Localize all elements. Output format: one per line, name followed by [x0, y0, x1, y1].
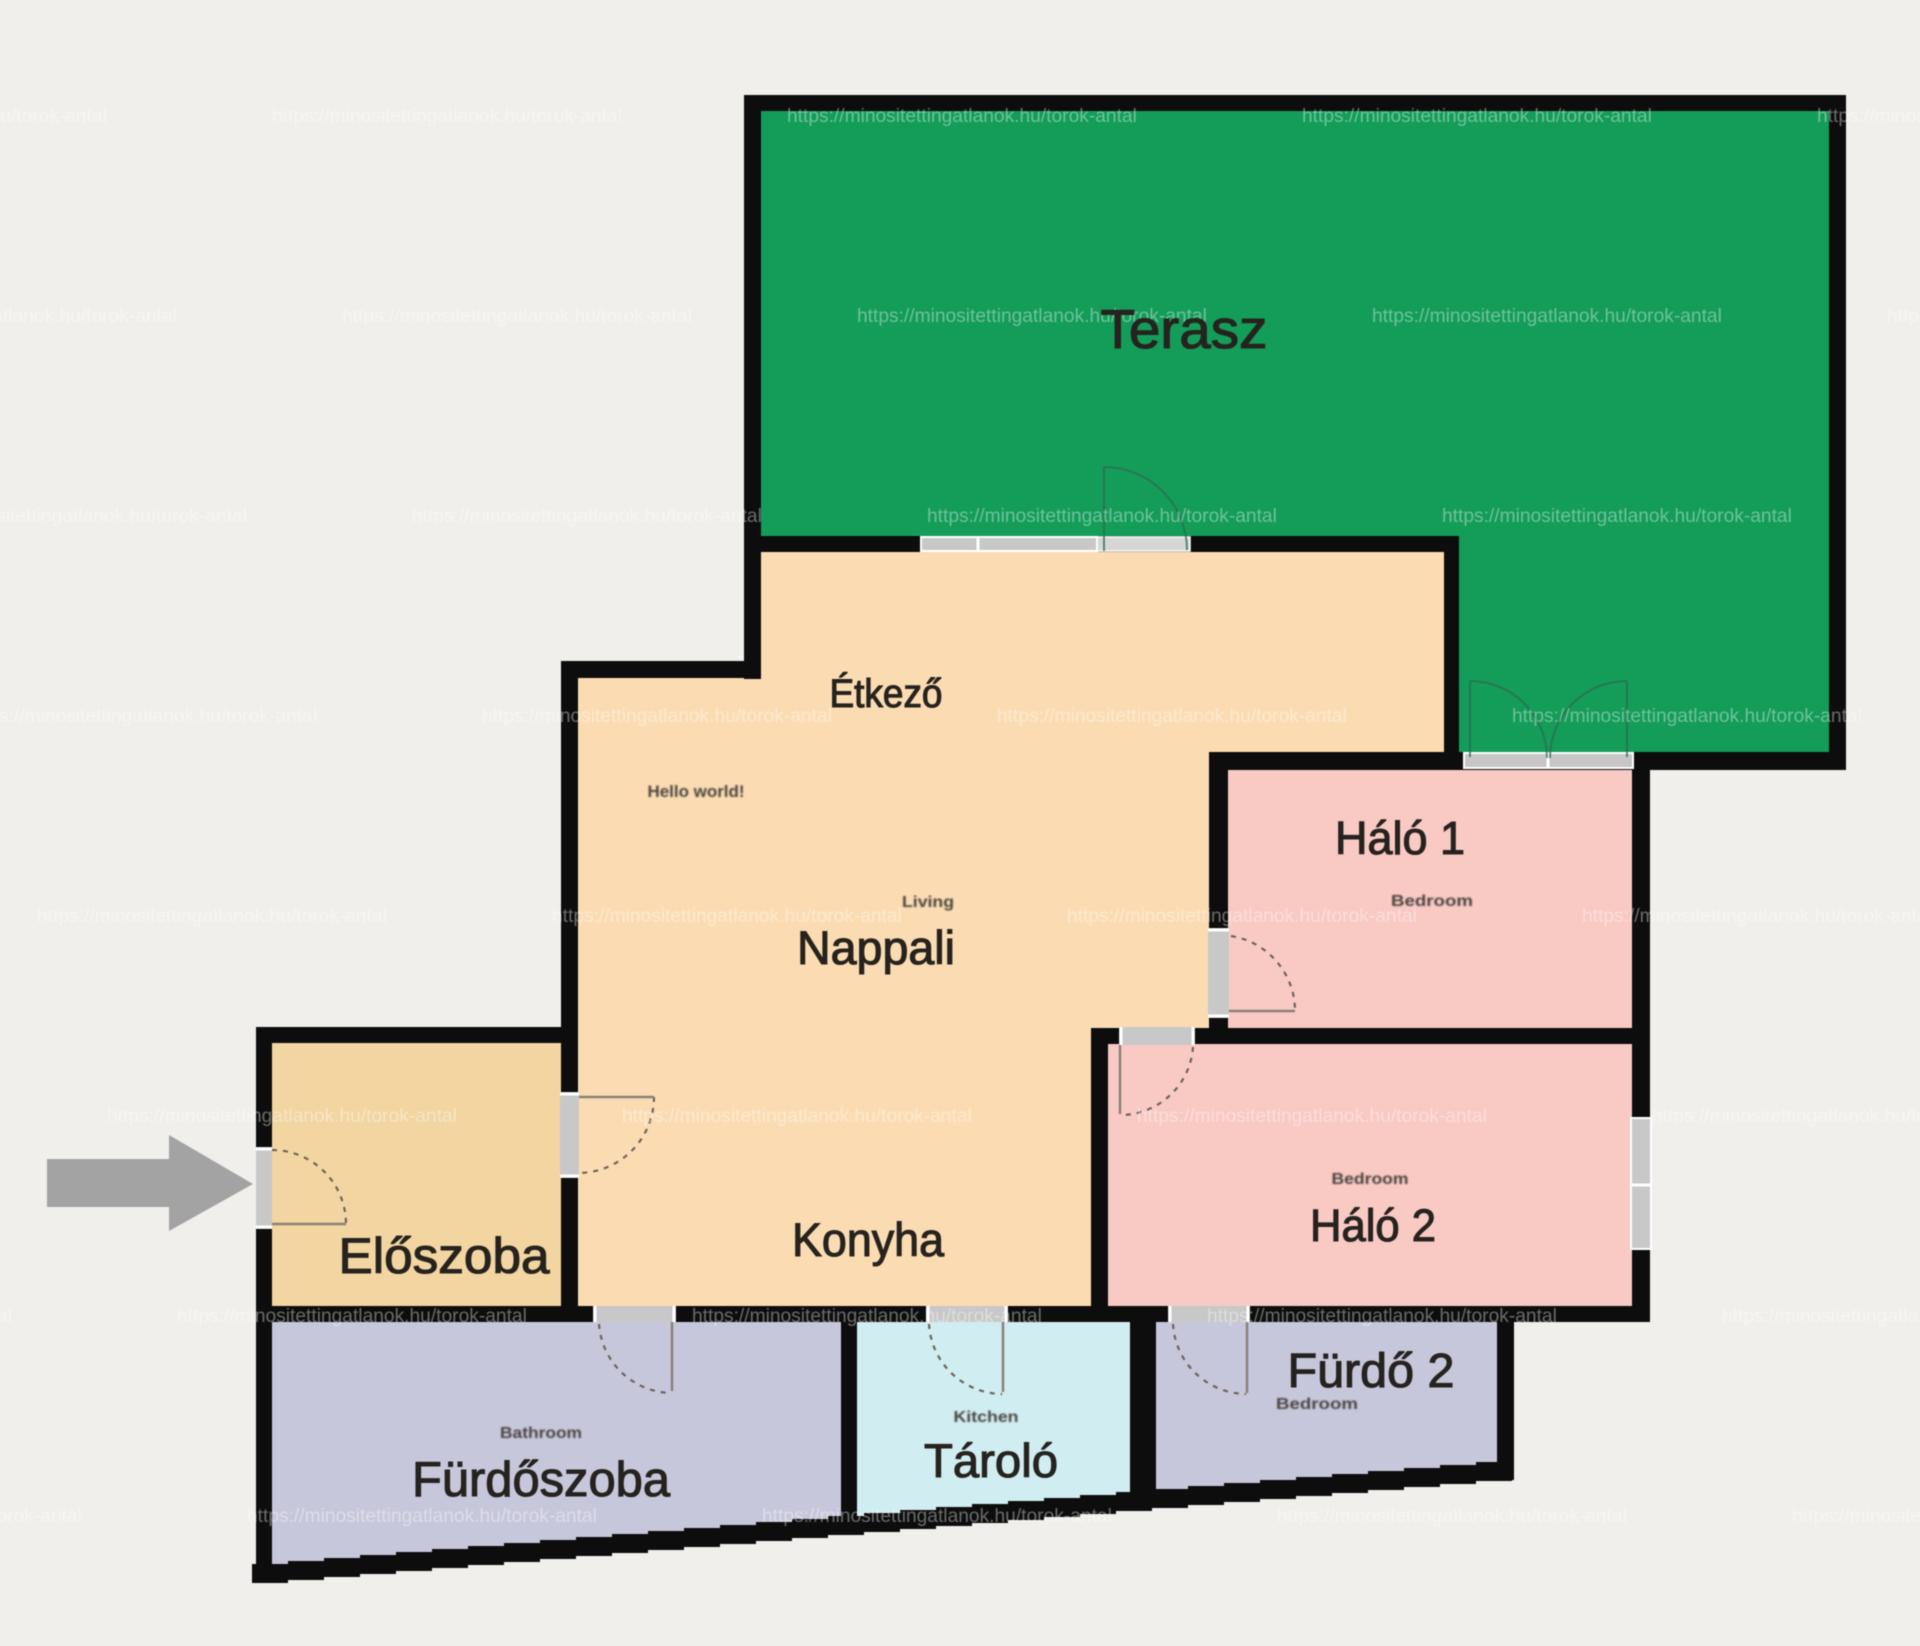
svg-text:https://minositettingatlanok.h: https://minositettingatlanok.hu/torok-an…	[0, 706, 317, 727]
svg-text:https://minositettingatlanok.h: https://minositettingatlanok.hu/torok-an…	[1067, 906, 1417, 927]
svg-text:https://minositettingatlanok.h: https://minositettingatlanok.hu/torok-an…	[787, 106, 1137, 127]
svg-text:https://minositettingatlanok.h: https://minositettingatlanok.hu/torok-an…	[1442, 506, 1792, 527]
svg-text:Étkező: Étkező	[830, 671, 943, 716]
svg-text:Bedroom: Bedroom	[1332, 1171, 1409, 1188]
svg-text:https://minositettingatlanok.h: https://minositettingatlanok.hu/torok-an…	[927, 506, 1277, 527]
svg-text:https://minositettingatlanok.h: https://minositettingatlanok.hu/torok-an…	[0, 106, 107, 127]
svg-text:Terasz: Terasz	[1101, 298, 1268, 360]
svg-text:https://minositettingatlanok.h: https://minositettingatlanok.hu/torok-an…	[1792, 1506, 1920, 1527]
svg-text:Nappali: Nappali	[797, 921, 955, 974]
svg-text:https://minositettingatlanok.h: https://minositettingatlanok.hu/torok-an…	[0, 506, 247, 527]
svg-text:https://minositettingatlanok.h: https://minositettingatlanok.hu/torok-an…	[0, 306, 177, 327]
svg-text:https://minositettingatlanok.h: https://minositettingatlanok.hu/torok-an…	[1137, 1106, 1487, 1127]
svg-text:Fürdő 2: Fürdő 2	[1288, 1345, 1455, 1398]
svg-text:Kitchen: Kitchen	[954, 1409, 1019, 1426]
svg-text:https://minositettingatlanok.h: https://minositettingatlanok.hu/torok-an…	[1817, 106, 1920, 127]
svg-text:Fürdőszoba: Fürdőszoba	[412, 1453, 671, 1507]
svg-text:Konyha: Konyha	[792, 1213, 945, 1266]
svg-text:Living: Living	[902, 894, 954, 911]
svg-text:https://minositettingatlanok.h: https://minositettingatlanok.hu/torok-an…	[0, 1506, 82, 1527]
svg-text:https://minositettingatlanok.h: https://minositettingatlanok.hu/torok-an…	[272, 106, 622, 127]
svg-text:https://minositettingatlanok.h: https://minositettingatlanok.hu/torok-an…	[412, 506, 762, 527]
svg-text:https://minositettingatlanok.h: https://minositettingatlanok.hu/torok-an…	[1372, 306, 1722, 327]
svg-text:https://minositettingatlanok.h: https://minositettingatlanok.hu/torok-an…	[762, 1506, 1112, 1527]
svg-text:https://minositettingatlanok.h: https://minositettingatlanok.hu/torok-an…	[342, 306, 692, 327]
svg-text:https://minositettingatlanok.h: https://minositettingatlanok.hu/torok-an…	[1512, 706, 1862, 727]
svg-text:https://minositettingatlanok.h: https://minositettingatlanok.hu/torok-an…	[1887, 306, 1920, 327]
svg-text:Tároló: Tároló	[924, 1434, 1058, 1487]
svg-text:https://minositettingatlanok.h: https://minositettingatlanok.hu/torok-an…	[177, 1306, 527, 1327]
svg-text:Háló 1: Háló 1	[1335, 812, 1465, 864]
svg-text:https://minositettingatlanok.h: https://minositettingatlanok.hu/torok-an…	[107, 1106, 457, 1127]
svg-text:https://minositettingatlanok.h: https://minositettingatlanok.hu/torok-an…	[1277, 1506, 1627, 1527]
svg-text:Előszoba: Előszoba	[339, 1228, 550, 1284]
svg-text:https://minositettingatlanok.h: https://minositettingatlanok.hu/torok-an…	[1722, 1306, 1920, 1327]
svg-text:https://minositettingatlanok.h: https://minositettingatlanok.hu/torok-an…	[482, 706, 832, 727]
svg-text:Hello world!: Hello world!	[648, 782, 745, 801]
svg-text:https://minositettingatlanok.h: https://minositettingatlanok.hu/torok-an…	[1302, 106, 1652, 127]
svg-text:https://minositettingatlanok.h: https://minositettingatlanok.hu/torok-an…	[622, 1106, 972, 1127]
svg-text:https://minositettingatlanok.h: https://minositettingatlanok.hu/torok-an…	[692, 1306, 1042, 1327]
svg-text:Bathroom: Bathroom	[500, 1425, 582, 1442]
svg-text:Bedroom: Bedroom	[1391, 893, 1473, 910]
svg-text:https://minositettingatlanok.h: https://minositettingatlanok.hu/torok-an…	[37, 906, 387, 927]
svg-text:https://minositettingatlanok.h: https://minositettingatlanok.hu/torok-an…	[1207, 1306, 1557, 1327]
svg-text:https://minositettingatlanok.h: https://minositettingatlanok.hu/torok-an…	[0, 1306, 12, 1327]
svg-text:Háló 2: Háló 2	[1310, 1200, 1436, 1251]
svg-text:https://minositettingatlanok.h: https://minositettingatlanok.hu/torok-an…	[247, 1506, 597, 1527]
svg-text:https://minositettingatlanok.h: https://minositettingatlanok.hu/torok-an…	[1582, 906, 1920, 927]
svg-text:https://minositettingatlanok.h: https://minositettingatlanok.hu/torok-an…	[1652, 1106, 1920, 1127]
svg-text:https://minositettingatlanok.h: https://minositettingatlanok.hu/torok-an…	[997, 706, 1347, 727]
svg-text:Bedroom: Bedroom	[1276, 1396, 1358, 1413]
